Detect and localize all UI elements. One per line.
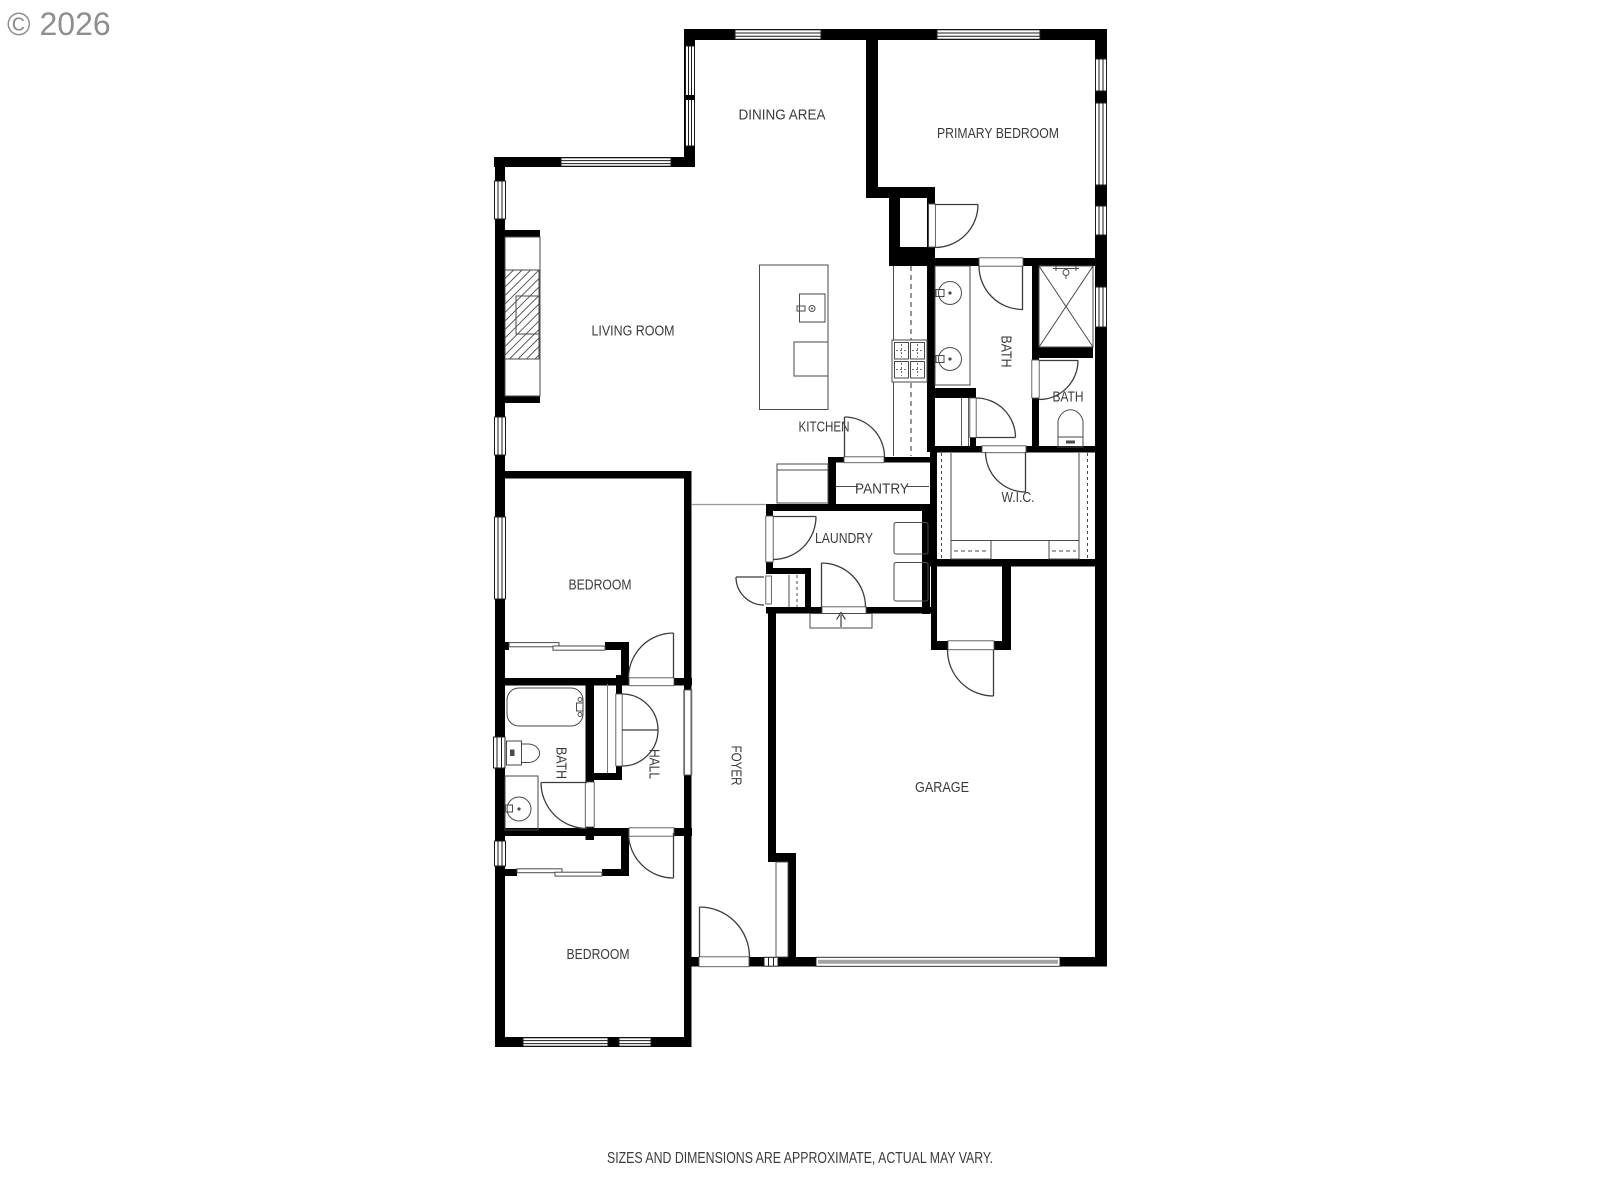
- svg-text:© 2026: © 2026: [7, 6, 111, 42]
- svg-text:FOYER: FOYER: [728, 746, 745, 786]
- svg-text:KITCHEN: KITCHEN: [799, 419, 850, 436]
- svg-text:W.I.C.: W.I.C.: [1002, 489, 1035, 506]
- svg-text:LAUNDRY: LAUNDRY: [815, 530, 873, 547]
- svg-text:HALL: HALL: [646, 749, 663, 779]
- svg-text:BATH: BATH: [553, 747, 570, 779]
- svg-text:PANTRY: PANTRY: [855, 481, 909, 498]
- svg-text:BATH: BATH: [1053, 389, 1084, 406]
- svg-text:BEDROOM: BEDROOM: [567, 946, 630, 963]
- svg-text:LIVING ROOM: LIVING ROOM: [592, 323, 675, 340]
- svg-text:GARAGE: GARAGE: [915, 779, 969, 796]
- svg-text:BATH: BATH: [998, 336, 1015, 368]
- svg-text:SIZES AND DIMENSIONS ARE APPRO: SIZES AND DIMENSIONS ARE APPROXIMATE, AC…: [607, 1150, 993, 1167]
- svg-text:DINING AREA: DINING AREA: [739, 107, 826, 124]
- svg-text:BEDROOM: BEDROOM: [569, 577, 632, 594]
- svg-text:PRIMARY BEDROOM: PRIMARY BEDROOM: [937, 125, 1059, 142]
